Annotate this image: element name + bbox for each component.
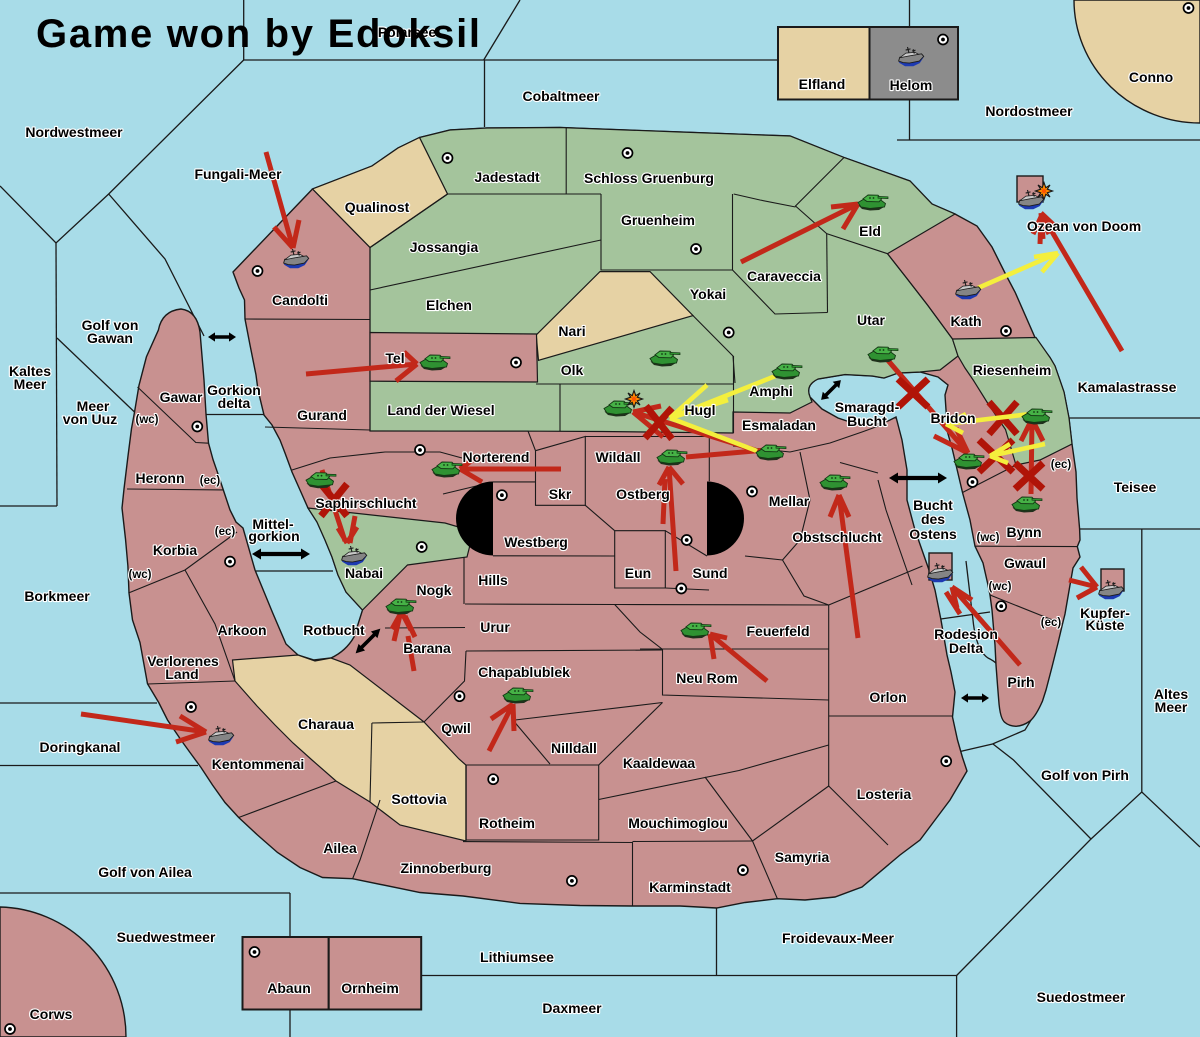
svg-text:Corws: Corws [30,1006,73,1022]
svg-text:Meer: Meer [14,376,47,392]
svg-text:Ozean von Doom: Ozean von Doom [1027,218,1141,234]
svg-text:Gawan: Gawan [87,330,133,346]
svg-text:Caraveccia: Caraveccia [747,268,821,284]
svg-text:Neu Rom: Neu Rom [676,670,737,686]
svg-text:Gawar: Gawar [160,389,203,405]
svg-text:Elchen: Elchen [426,297,472,313]
svg-text:Ostberg: Ostberg [616,486,670,502]
svg-text:(wc): (wc) [989,581,1012,593]
svg-text:Heronn: Heronn [136,470,185,486]
svg-text:Küste: Küste [1086,617,1125,633]
svg-text:Gruenheim: Gruenheim [621,212,695,228]
svg-text:Qwil: Qwil [441,720,471,736]
svg-text:Nari: Nari [558,323,585,339]
svg-text:Golf von Pirh: Golf von Pirh [1041,767,1129,783]
svg-text:Esmaladan: Esmaladan [742,417,816,433]
svg-text:Conno: Conno [1129,69,1173,85]
svg-text:Hugl: Hugl [684,402,715,418]
svg-text:(ec): (ec) [1041,617,1062,629]
svg-text:Land der Wiesel: Land der Wiesel [387,402,494,418]
svg-text:Qualinost: Qualinost [345,199,410,215]
svg-text:Ostens: Ostens [909,526,957,542]
svg-text:Barana: Barana [403,640,451,656]
svg-text:Bridon: Bridon [930,410,975,426]
svg-text:Arkoon: Arkoon [218,622,267,638]
svg-text:Borkmeer: Borkmeer [24,588,90,604]
svg-text:Westberg: Westberg [504,534,568,550]
svg-text:Skr: Skr [549,486,572,502]
svg-text:Meer: Meer [1155,699,1188,715]
svg-text:Olk: Olk [561,362,584,378]
svg-text:Pirh: Pirh [1007,674,1034,690]
svg-text:Riesenheim: Riesenheim [973,362,1052,378]
svg-text:Hills: Hills [478,572,508,588]
svg-text:(wc): (wc) [977,532,1000,544]
svg-text:Yokai: Yokai [690,286,726,302]
svg-text:Ornheim: Ornheim [341,980,399,996]
svg-text:Losteria: Losteria [857,786,912,802]
svg-text:Sottovia: Sottovia [391,791,446,807]
svg-text:Eld: Eld [859,223,881,239]
svg-text:Cobaltmeer: Cobaltmeer [522,88,600,104]
svg-text:Orlon: Orlon [869,689,906,705]
svg-text:Ailea: Ailea [323,840,357,856]
svg-text:Rotbucht: Rotbucht [303,622,365,638]
svg-text:Kath: Kath [950,313,981,329]
svg-text:Helom: Helom [890,77,933,93]
svg-text:Candolti: Candolti [272,292,328,308]
svg-text:Sund: Sund [693,565,728,581]
svg-text:Nordwestmeer: Nordwestmeer [25,124,123,140]
svg-text:Nordostmeer: Nordostmeer [985,103,1073,119]
svg-text:Mouchimoglou: Mouchimoglou [628,815,728,831]
svg-text:Feuerfeld: Feuerfeld [746,623,809,639]
svg-text:Samyria: Samyria [775,849,830,865]
svg-text:Suedostmeer: Suedostmeer [1037,989,1126,1005]
svg-text:Nabai: Nabai [345,565,383,581]
svg-text:Game won by Edoksil: Game won by Edoksil [36,12,482,56]
svg-text:Norterend: Norterend [463,449,530,465]
svg-text:Rotheim: Rotheim [479,815,535,831]
svg-text:(ec): (ec) [215,526,236,538]
svg-text:Bucht: Bucht [847,413,887,429]
svg-text:Nogk: Nogk [417,582,452,598]
svg-text:Golf von Ailea: Golf von Ailea [98,864,192,880]
svg-text:Saphirschlucht: Saphirschlucht [315,495,416,511]
svg-text:Tel: Tel [385,350,404,366]
svg-text:Wildall: Wildall [596,449,641,465]
svg-text:delta: delta [218,395,251,411]
svg-text:Elfland: Elfland [799,76,846,92]
svg-text:Korbia: Korbia [153,542,198,558]
svg-text:Nilldall: Nilldall [551,740,597,756]
svg-text:Land: Land [165,666,198,682]
svg-text:Urur: Urur [480,619,510,635]
svg-text:(wc): (wc) [129,569,152,581]
svg-text:Gwaul: Gwaul [1004,555,1046,571]
svg-text:Kaaldewaa: Kaaldewaa [623,755,696,771]
svg-text:Kamalastrasse: Kamalastrasse [1078,379,1177,395]
svg-text:Jossangia: Jossangia [410,239,479,255]
svg-text:Fungali-Meer: Fungali-Meer [194,166,282,182]
svg-text:(ec): (ec) [200,475,221,487]
svg-text:Mellar: Mellar [769,493,810,509]
svg-text:(ec): (ec) [1051,459,1072,471]
svg-text:des: des [921,511,945,527]
svg-text:Delta: Delta [949,640,983,656]
svg-text:Daxmeer: Daxmeer [542,1000,602,1016]
svg-text:Zinnoberburg: Zinnoberburg [401,860,492,876]
svg-text:Teisee: Teisee [1114,479,1157,495]
svg-text:Schloss Gruenburg: Schloss Gruenburg [584,170,714,186]
svg-text:Froidevaux-Meer: Froidevaux-Meer [782,930,895,946]
svg-text:Lithiumsee: Lithiumsee [480,949,554,965]
svg-text:Chapablublek: Chapablublek [478,664,570,680]
svg-text:Bynn: Bynn [1007,524,1042,540]
svg-text:Jadestadt: Jadestadt [474,169,540,185]
svg-text:Charaua: Charaua [298,716,354,732]
svg-text:(wc): (wc) [136,414,159,426]
svg-text:Suedwestmeer: Suedwestmeer [117,929,216,945]
svg-text:Eun: Eun [625,565,651,581]
svg-text:Amphi: Amphi [749,383,793,399]
svg-text:von Uuz: von Uuz [63,411,117,427]
svg-text:Utar: Utar [857,312,886,328]
svg-text:Gurand: Gurand [297,407,347,423]
svg-text:Kentommenai: Kentommenai [212,756,305,772]
svg-text:Abaun: Abaun [267,980,311,996]
svg-text:gorkion: gorkion [248,528,299,544]
svg-text:Doringkanal: Doringkanal [40,739,121,755]
svg-text:Obstschlucht: Obstschlucht [792,529,882,545]
svg-text:Karminstadt: Karminstadt [649,879,731,895]
